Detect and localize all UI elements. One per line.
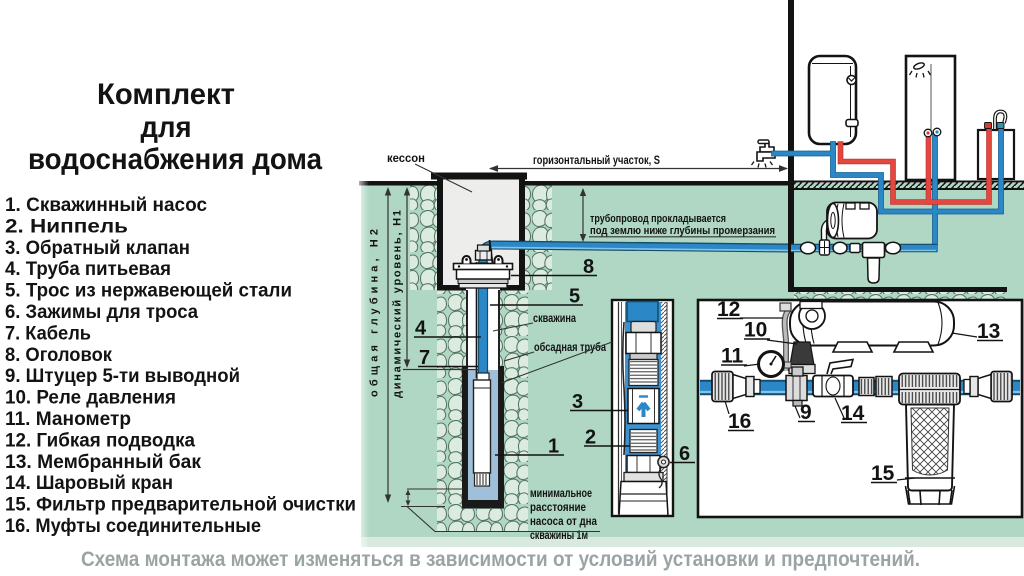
svg-text:10: 10: [744, 319, 767, 342]
svg-text:4. Труба питьевая: 4. Труба питьевая: [5, 259, 171, 280]
svg-text:обсадная труба: обсадная труба: [534, 340, 606, 354]
svg-text:под землю ниже глубины промерз: под землю ниже глубины промерзания: [590, 225, 775, 237]
svg-text:расстояние: расстояние: [530, 500, 586, 514]
svg-text:трубопровод прокладывается: трубопровод прокладывается: [590, 213, 726, 225]
svg-text:11: 11: [721, 345, 744, 368]
svg-text:2. Ниппель: 2. Ниппель: [5, 216, 128, 237]
svg-text:5: 5: [569, 286, 580, 308]
svg-text:9: 9: [800, 401, 812, 424]
svg-text:14: 14: [841, 402, 865, 425]
svg-text:7: 7: [419, 347, 430, 369]
svg-text:3: 3: [572, 391, 583, 413]
svg-text:Комплект: Комплект: [97, 78, 235, 111]
svg-text:8. Оголовок: 8. Оголовок: [5, 345, 112, 366]
svg-text:16. Муфты соединительные: 16. Муфты соединительные: [5, 516, 261, 537]
svg-text:10. Реле давления: 10. Реле давления: [5, 388, 176, 409]
svg-text:6. Зажимы для троса: 6. Зажимы для троса: [5, 302, 198, 323]
svg-text:водоснабжения дома: водоснабжения дома: [28, 143, 322, 176]
svg-text:для: для: [141, 111, 192, 144]
svg-text:1: 1: [548, 436, 559, 458]
svg-text:динамический уровень, Н1: динамический уровень, Н1: [392, 210, 404, 398]
svg-text:минимальное: минимальное: [530, 486, 592, 500]
svg-text:11. Манометр: 11. Манометр: [5, 409, 131, 430]
svg-text:Схема монтажа может изменяться: Схема монтажа может изменяться в зависим…: [81, 547, 920, 571]
svg-text:скважины 1м: скважины 1м: [530, 528, 588, 542]
svg-text:1. Скважинный насос: 1. Скважинный насос: [5, 195, 207, 216]
svg-text:общая глубина, Н2: общая глубина, Н2: [369, 229, 381, 397]
svg-text:8: 8: [583, 256, 594, 278]
svg-text:13: 13: [977, 320, 1000, 343]
svg-text:3. Обратный клапан: 3. Обратный клапан: [5, 238, 190, 259]
svg-text:2: 2: [585, 427, 596, 449]
svg-text:15: 15: [871, 462, 895, 485]
svg-text:7. Кабель: 7. Кабель: [5, 323, 91, 344]
svg-text:горизонтальный участок, S: горизонтальный участок, S: [533, 153, 660, 167]
svg-text:6: 6: [679, 443, 690, 465]
svg-text:4: 4: [415, 318, 427, 340]
svg-text:12: 12: [717, 298, 740, 321]
svg-text:12. Гибкая подводка: 12. Гибкая подводка: [5, 430, 195, 451]
svg-text:15. Фильтр предварительной очи: 15. Фильтр предварительной очистки: [5, 495, 356, 516]
svg-text:14. Шаровый кран: 14. Шаровый кран: [5, 473, 173, 494]
svg-text:13. Мембранный бак: 13. Мембранный бак: [5, 452, 201, 473]
svg-text:скважина: скважина: [533, 311, 576, 325]
svg-text:насоса от дна: насоса от дна: [530, 514, 597, 528]
svg-text:16: 16: [728, 410, 751, 433]
svg-text:кессон: кессон: [387, 151, 425, 165]
svg-text:9. Штуцер 5-ти выводной: 9. Штуцер 5-ти выводной: [5, 366, 240, 387]
svg-text:5. Трос из нержавеющей стали: 5. Трос из нержавеющей стали: [5, 281, 292, 302]
